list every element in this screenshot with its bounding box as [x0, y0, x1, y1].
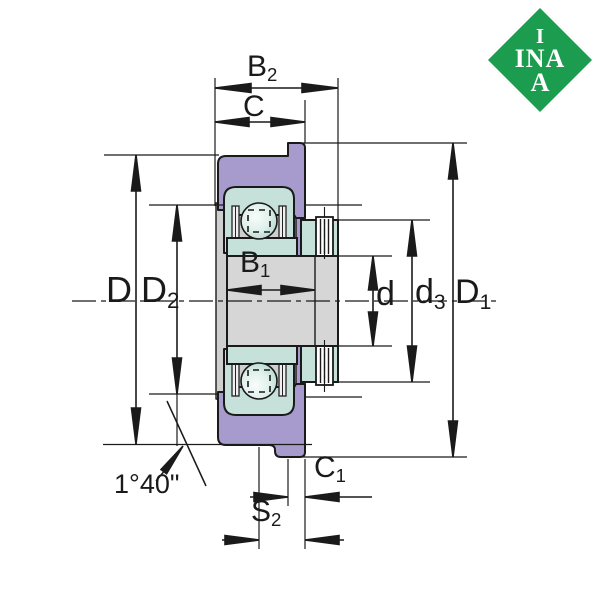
dim-label-d3: d3	[415, 275, 446, 313]
bearing-lower-half	[224, 346, 338, 415]
ball	[241, 203, 277, 239]
dim-label-c1: C1	[314, 453, 346, 486]
ina-logo-line3: A	[531, 71, 550, 95]
bearing-dimension-drawing: B2 C B1 D D2 d d3 D1 C1 S2 1°40" I INA A	[0, 0, 600, 600]
angle-label: 1°40"	[114, 471, 179, 498]
dimension-s2	[222, 536, 344, 545]
dim-label-b2: B2	[247, 52, 277, 85]
dim-label-d-outer: D	[106, 272, 132, 313]
dim-label-s2: S2	[251, 497, 281, 530]
dim-label-d2: D2	[141, 272, 179, 313]
dim-label-d1: D1	[455, 275, 491, 313]
dim-label-d-bore: d	[376, 277, 395, 315]
ina-logo: I INA A	[488, 8, 592, 112]
dim-label-b1: B1	[240, 248, 270, 281]
dimension-d-outer	[132, 155, 141, 444]
dim-label-c: C	[243, 92, 265, 125]
